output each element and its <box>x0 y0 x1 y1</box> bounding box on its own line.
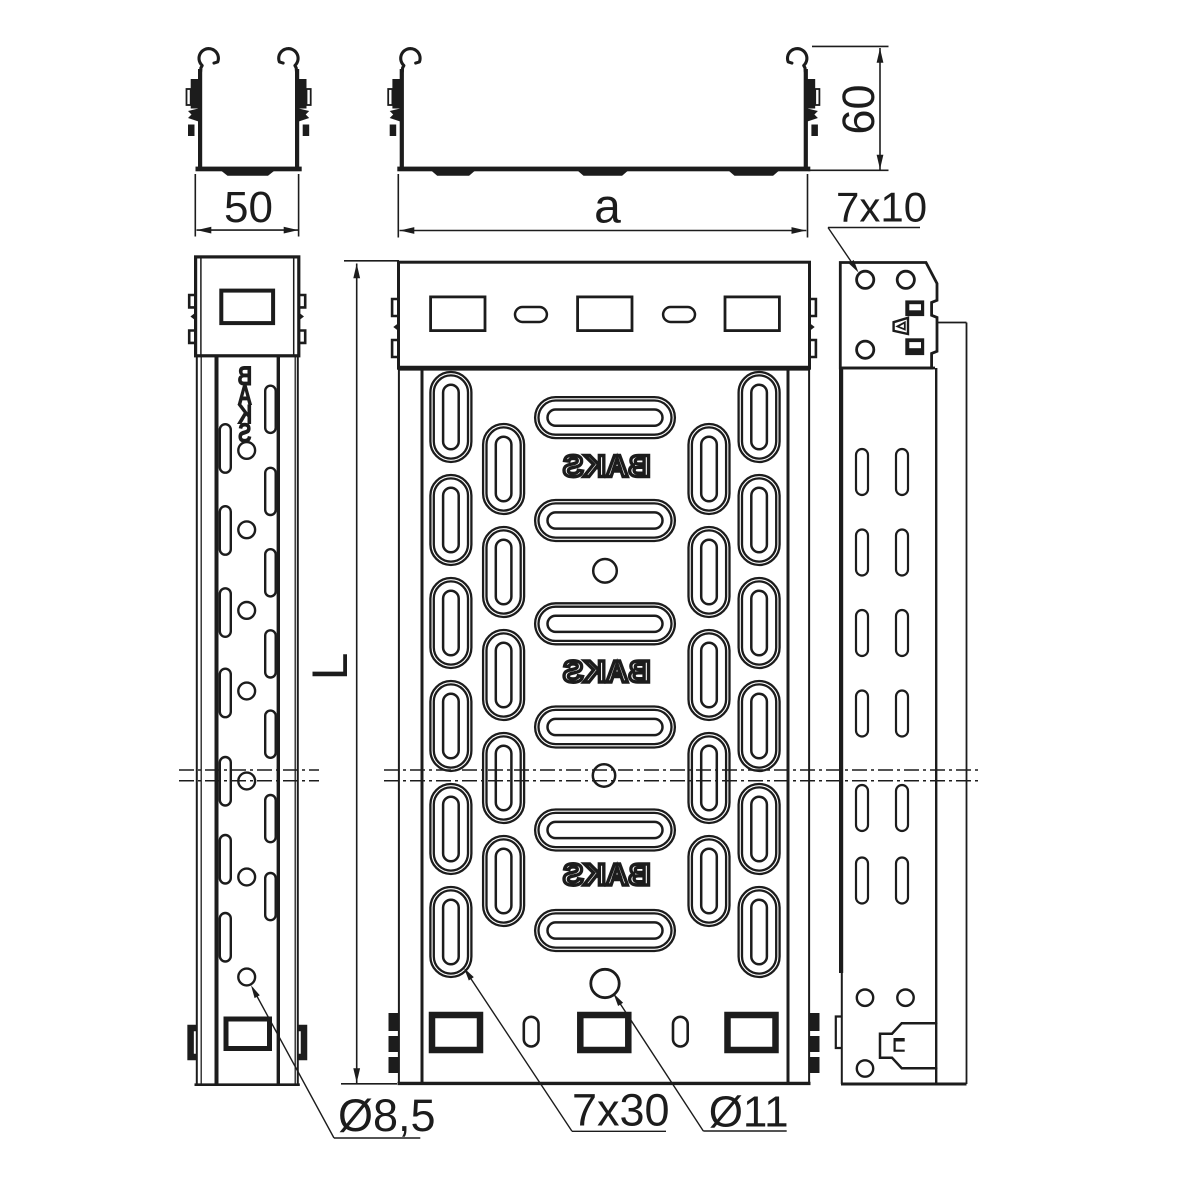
svg-text:B: B <box>628 448 650 483</box>
svg-text:S: S <box>563 654 584 689</box>
svg-text:S: S <box>563 857 584 892</box>
svg-text:Ø8,5: Ø8,5 <box>338 1090 436 1141</box>
svg-text:A: A <box>606 448 628 483</box>
svg-text:A: A <box>606 857 628 892</box>
svg-text:K: K <box>583 448 606 483</box>
svg-text:a: a <box>594 181 621 234</box>
svg-text:Ø11: Ø11 <box>709 1088 789 1137</box>
svg-text:L: L <box>302 653 358 681</box>
svg-text:7x30: 7x30 <box>572 1084 670 1135</box>
svg-text:B: B <box>628 654 650 689</box>
svg-text:K: K <box>583 857 606 892</box>
svg-text:7x10: 7x10 <box>836 184 927 231</box>
svg-text:B: B <box>628 857 650 892</box>
svg-text:50: 50 <box>224 183 273 232</box>
svg-text:A: A <box>606 654 628 689</box>
svg-text:K: K <box>583 654 606 689</box>
svg-text:60: 60 <box>833 84 884 134</box>
svg-text:S: S <box>563 448 584 483</box>
